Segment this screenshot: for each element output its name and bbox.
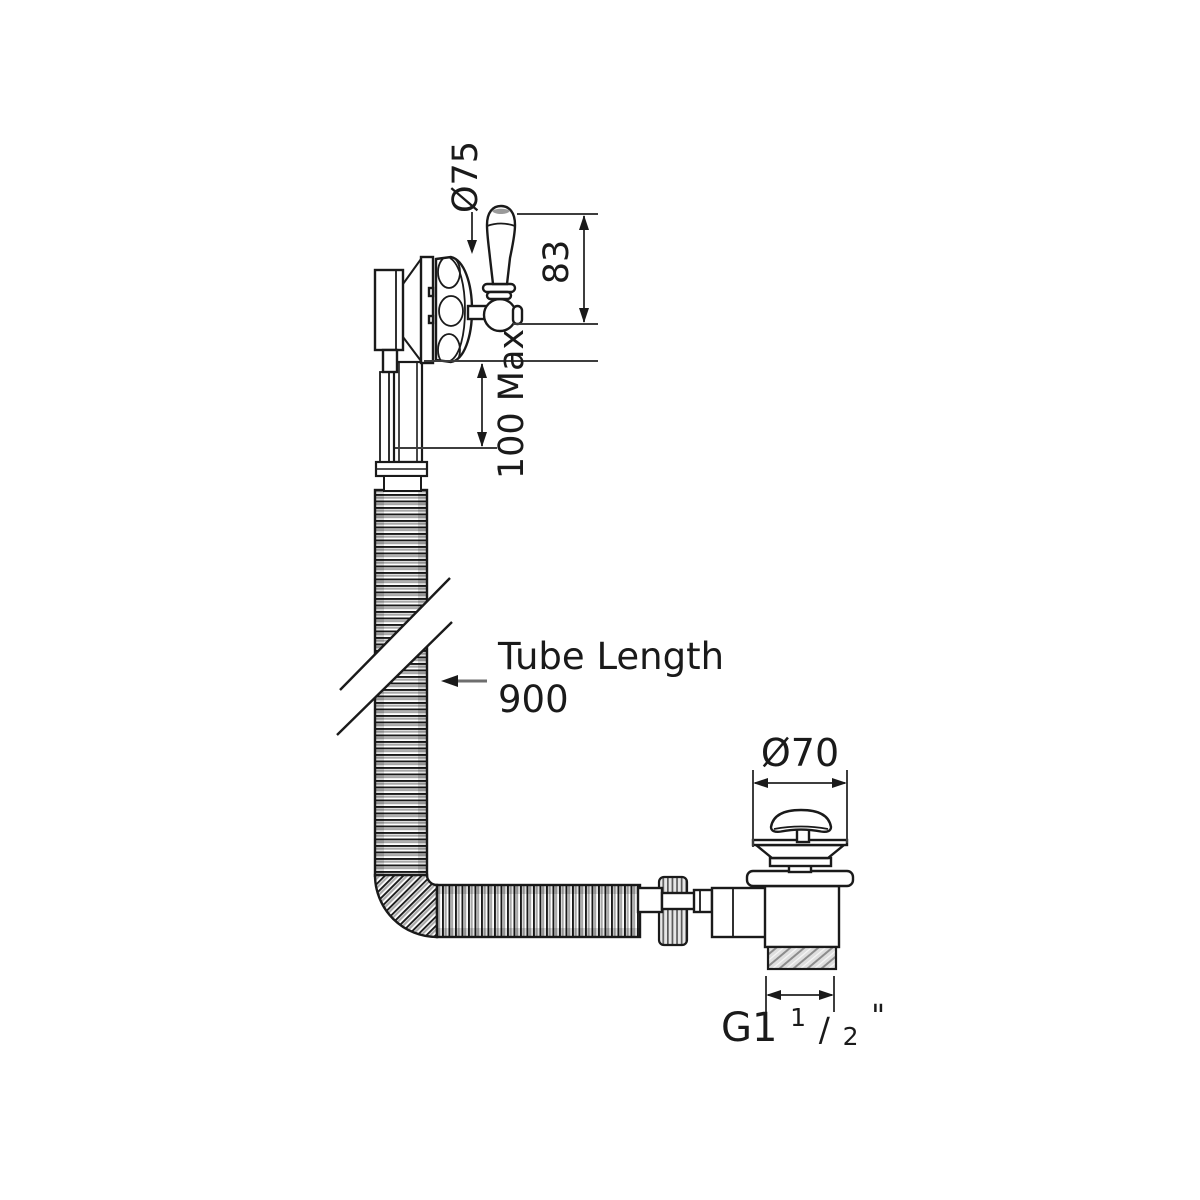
flexible-overflow-tube [337, 490, 640, 937]
waste-flange [747, 871, 853, 886]
ball-cap [513, 306, 522, 324]
rosette-dome [436, 257, 472, 362]
gusset-top [403, 259, 421, 284]
dimension-lever-diameter: Ø75 [446, 141, 486, 254]
dim83-arrow-up [579, 215, 589, 230]
tube-neck [384, 476, 421, 491]
dim100-arrow-down [477, 432, 487, 447]
dia70-arrow-right [832, 778, 847, 788]
plate-notch-upper [429, 288, 433, 296]
plate-notch-lower [429, 316, 433, 323]
dimension-lever-height: 83 [513, 214, 598, 324]
dim100-arrow-up [477, 363, 487, 378]
compression-fitting [638, 877, 767, 945]
gusset-bottom [403, 337, 421, 361]
lever-collar-lower [487, 292, 511, 299]
tube-length-value: 900 [498, 678, 569, 721]
dim83-arrow-down [579, 308, 589, 323]
lever-handle [487, 206, 515, 284]
dia75-arrowhead [467, 240, 477, 254]
waste-inlet-housing [712, 888, 767, 937]
mounting-plate [421, 257, 433, 363]
control-pipe [380, 372, 389, 464]
tube-shade-top [437, 885, 640, 894]
dia70-arrow-left [753, 778, 768, 788]
tube-length-label: Tube Length [497, 635, 724, 678]
tube-shade-right [418, 490, 427, 876]
tube-bend [375, 875, 437, 937]
waste-body [765, 886, 839, 947]
connector-pipe [662, 893, 696, 909]
dim100-label: 100 Max [492, 329, 532, 479]
thread-arrow-left [766, 990, 781, 1000]
knurled-nut [659, 877, 687, 945]
bath-filler-waste-diagram: Ø75 83 100 Max Tube Length 900 Ø70 [0, 0, 1200, 1200]
threaded-tail [768, 947, 836, 969]
annotation-tube-length: Tube Length 900 [441, 635, 724, 721]
technical-drawing-page: Ø75 83 100 Max Tube Length 900 Ø70 [0, 0, 1200, 1200]
dia75-label: Ø75 [446, 141, 486, 213]
thread-arrow-right [819, 990, 834, 1000]
plug-cone [756, 845, 844, 858]
tube-shade-bottom [437, 928, 640, 937]
upper-tube-assembly [376, 362, 427, 491]
dim83-label: 83 [537, 240, 577, 285]
thread-label: G1 1 / 2 " [721, 990, 885, 1055]
tube-end-collar [638, 888, 662, 912]
tube-length-arrowhead [441, 675, 458, 687]
back-body-neck [383, 350, 397, 372]
dimension-thread-size: G1 1 / 2 " [721, 976, 885, 1055]
dia70-label: Ø70 [761, 731, 839, 775]
filler-back-body [375, 270, 403, 350]
coupler [694, 890, 712, 912]
lever-ball-joint [484, 299, 516, 331]
